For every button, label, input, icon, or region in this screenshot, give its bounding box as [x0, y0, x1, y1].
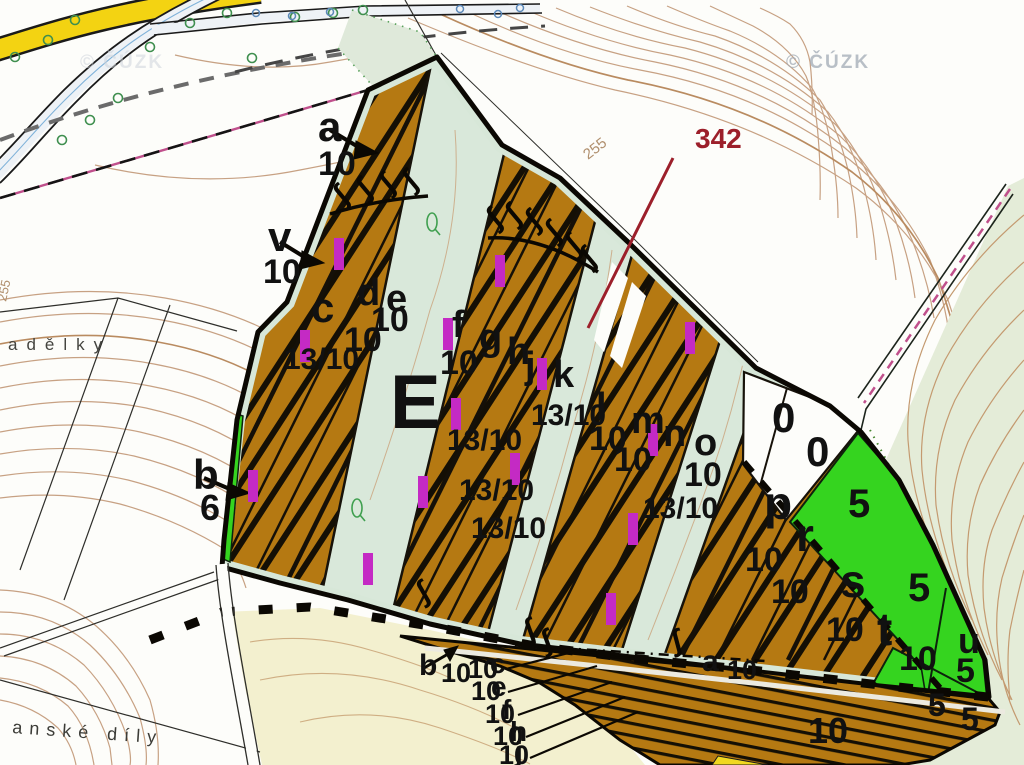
map-label: a — [318, 103, 342, 150]
magenta-mark — [495, 255, 505, 287]
map-label: 5 — [928, 687, 946, 723]
map-label: t — [877, 603, 892, 655]
map-label: s — [840, 555, 866, 607]
map-label: 0 — [772, 394, 795, 441]
map-label: g — [479, 317, 502, 359]
magenta-mark — [537, 358, 547, 390]
magenta-mark — [418, 476, 428, 508]
map-label: 10 — [441, 658, 471, 688]
map-label: 10 — [440, 344, 478, 382]
map-label: adělky — [8, 335, 111, 354]
map-label: 10 — [826, 611, 864, 649]
map-label: 255 — [580, 134, 610, 163]
map-label: 255 — [0, 278, 13, 302]
map-label: 10 — [808, 710, 848, 751]
magenta-mark — [248, 470, 258, 502]
map-label: 13/10 — [447, 424, 522, 457]
map-label: c — [311, 284, 334, 331]
map-label: 10 — [899, 640, 937, 678]
forestry-map: ∫∫∫∫∫∫∫∫∫∫∫∫∫∫ a10v10b6cde101013/10Ef10g… — [0, 0, 1024, 765]
map-label: 13/10 — [284, 343, 359, 376]
map-label: k — [553, 354, 575, 396]
forestry-map-screenshot: ∫∫∫∫∫∫∫∫∫∫∫∫∫∫ a10v10b6cde101013/10Ef10g… — [0, 0, 1024, 765]
map-label: 5 — [961, 701, 979, 737]
magenta-mark — [628, 513, 638, 545]
map-label: 10 — [614, 441, 652, 479]
tree-symbol-icon — [86, 116, 95, 125]
map-label: 10 — [318, 145, 356, 183]
map-label: p — [764, 477, 792, 529]
map-label: j — [524, 345, 536, 387]
magenta-mark — [685, 322, 695, 354]
map-label: 10 — [727, 655, 757, 685]
map-label: f — [452, 304, 465, 346]
map-label: 13/10 — [471, 512, 546, 545]
map-label: 13/10 — [643, 492, 718, 525]
tree-symbol-icon — [146, 43, 155, 52]
map-label: 342 — [695, 123, 742, 154]
map-label: r — [796, 509, 814, 561]
map-label: E — [390, 360, 441, 445]
magenta-mark — [363, 553, 373, 585]
magenta-mark — [334, 238, 344, 270]
map-label: 10 — [771, 573, 809, 611]
map-label: 13/10 — [459, 474, 534, 507]
map-label: 5 — [848, 482, 870, 526]
tree-symbol-icon — [248, 54, 257, 63]
map-label: a — [702, 645, 719, 678]
map-label: 5 — [956, 652, 975, 690]
map-label: 0 — [806, 428, 829, 475]
map-label: 10 — [263, 253, 301, 291]
map-label: n — [663, 413, 686, 455]
magenta-mark — [606, 593, 616, 625]
map-label: j — [514, 736, 523, 765]
map-label: 5 — [908, 566, 930, 610]
map-label: 6 — [200, 487, 220, 528]
map-label: b — [419, 649, 437, 682]
tree-symbol-icon — [114, 94, 123, 103]
map-label: 10 — [684, 456, 722, 494]
map-label: m — [631, 400, 665, 442]
tree-symbol-icon — [58, 136, 67, 145]
